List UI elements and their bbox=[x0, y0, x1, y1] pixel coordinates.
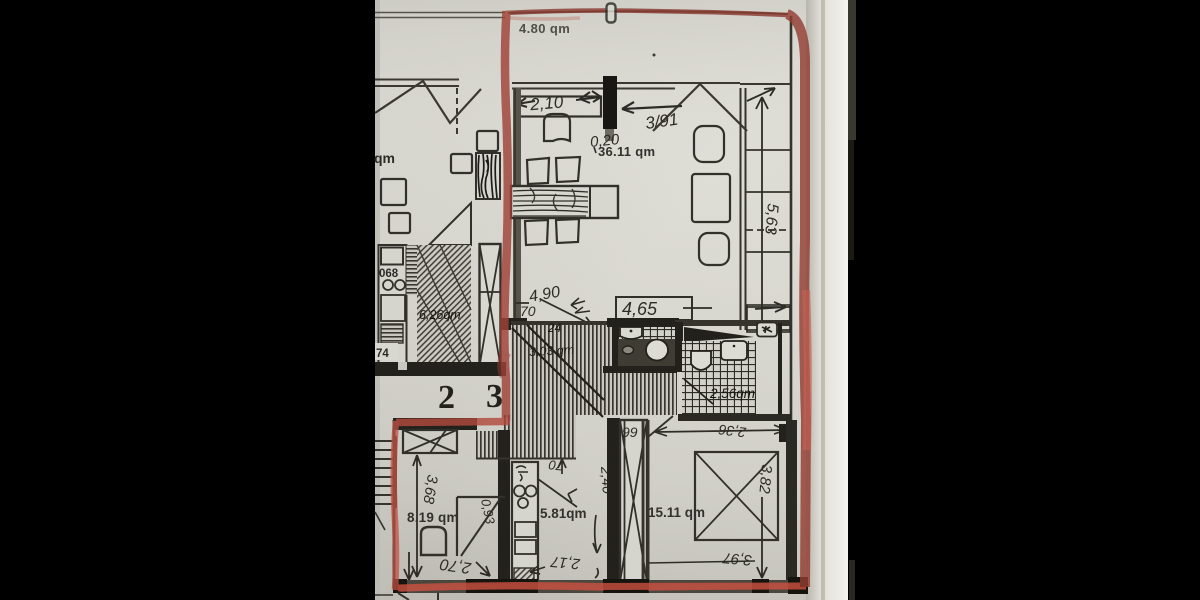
svg-text:3,82: 3,82 bbox=[755, 464, 775, 495]
svg-text:3,03 qm: 3,03 qm bbox=[529, 343, 575, 359]
svg-text:15.11 qm: 15.11 qm bbox=[648, 505, 705, 520]
svg-text:3,97: 3,97 bbox=[721, 549, 752, 569]
svg-text:5.81qm: 5.81qm bbox=[540, 506, 587, 521]
svg-text:3: 3 bbox=[486, 378, 503, 415]
svg-text:74: 74 bbox=[376, 348, 389, 360]
svg-text:2: 2 bbox=[438, 379, 455, 416]
svg-text:2,17: 2,17 bbox=[550, 553, 582, 573]
svg-text:qm: qm bbox=[374, 150, 395, 166]
svg-text:6,26qm: 6,26qm bbox=[419, 308, 461, 322]
svg-text:4,65: 4,65 bbox=[622, 299, 658, 319]
svg-text:2,56qm: 2,56qm bbox=[709, 386, 755, 401]
svg-text:70: 70 bbox=[547, 457, 564, 474]
svg-text:068: 068 bbox=[379, 268, 399, 280]
svg-text:36.11 qm: 36.11 qm bbox=[598, 144, 655, 159]
svg-text:2,10: 2,10 bbox=[528, 92, 564, 114]
svg-text:24: 24 bbox=[547, 321, 562, 335]
svg-text:8.19 qm: 8.19 qm bbox=[407, 510, 459, 525]
svg-text:5,63: 5,63 bbox=[761, 203, 781, 236]
svg-text:70: 70 bbox=[520, 303, 536, 319]
svg-text:99: 99 bbox=[622, 424, 638, 440]
svg-text:4.80 qm: 4.80 qm bbox=[519, 21, 570, 36]
